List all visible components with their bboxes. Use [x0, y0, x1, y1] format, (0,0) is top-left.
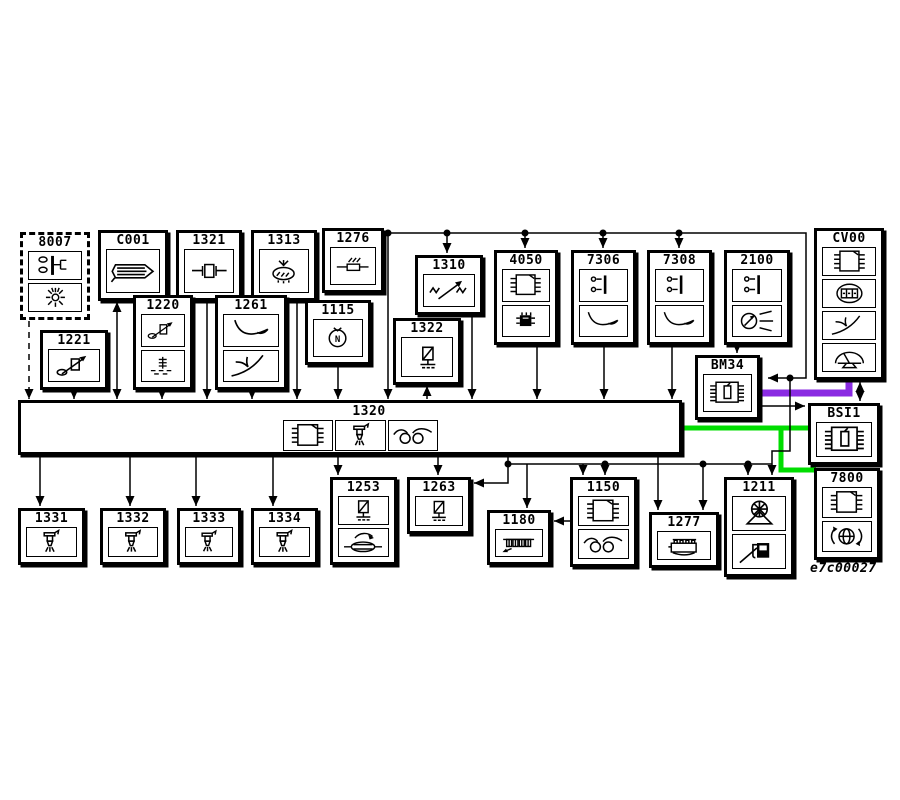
arrowhead: [293, 389, 302, 399]
coils-icon: [580, 531, 626, 557]
symbol-cells: [655, 269, 704, 337]
solenoid-diag-icon: [404, 340, 451, 375]
symbol-cell-fuel-pump: [732, 534, 786, 569]
junction-dot: [787, 375, 794, 382]
symbol-cells: [259, 527, 310, 557]
symbol-cell-engine: [657, 531, 711, 560]
symbol-cells: [502, 269, 550, 337]
symbol-cell-switch-2pin: [655, 269, 704, 302]
symbol-cell-starburst: [28, 283, 82, 312]
component-2100: 2100: [724, 250, 790, 345]
component-BM34: BM34: [695, 355, 760, 420]
arrowhead: [668, 389, 677, 399]
symbol-cell-pedal-curve: [579, 305, 628, 338]
component-label-1276: 1276: [325, 231, 381, 246]
ecu-icon: [705, 376, 749, 409]
knock-sensor-icon: [426, 276, 473, 305]
arrowhead: [474, 479, 484, 488]
symbol-cell-compass-n: N: [313, 319, 363, 357]
component-1333: 1333: [177, 508, 241, 565]
arrowhead: [856, 391, 865, 401]
resistor-heated-icon: [332, 249, 373, 282]
arrowhead: [654, 500, 663, 510]
symbol-cell-pedal-curve: [655, 305, 704, 338]
component-1261: 1261: [215, 295, 287, 390]
component-7308: 7308: [647, 250, 712, 345]
pedal-curve-icon: [226, 316, 277, 344]
arrowhead: [384, 389, 393, 399]
capacitor-icon: [186, 252, 231, 291]
symbol-cells: [415, 496, 463, 526]
junction-dot: [602, 461, 609, 468]
symbol-cell-branch-curve: [822, 311, 876, 340]
component-label-1115: 1115: [308, 303, 368, 318]
symbol-cells: [495, 529, 543, 557]
pedal-curve-icon: [657, 307, 701, 335]
arrowhead: [768, 465, 777, 475]
float-sensor-icon: [143, 316, 182, 344]
junction-dot: [745, 461, 752, 468]
component-8007: 8007: [20, 232, 90, 320]
component-1276: 1276: [322, 228, 384, 293]
component-1331: 1331: [18, 508, 85, 565]
switch-2pin-icon: [581, 271, 625, 299]
arrowhead: [36, 496, 45, 506]
component-1313: 1313: [251, 230, 317, 301]
sensor-oval-icon: [261, 252, 306, 291]
junction-dot: [522, 230, 529, 237]
component-label-1331: 1331: [21, 511, 82, 526]
component-C001: C001: [98, 230, 168, 301]
symbol-cells: [338, 496, 389, 557]
arrowhead: [599, 238, 608, 248]
component-1150: 1150: [570, 477, 637, 567]
symbol-cell-display-oval: [822, 279, 876, 308]
arrowhead: [158, 389, 167, 399]
injector-icon: [338, 422, 383, 449]
arrowhead: [334, 389, 343, 399]
arrowhead: [70, 389, 79, 399]
arrowhead: [443, 243, 452, 253]
arrowhead: [744, 465, 753, 475]
symbol-cell-sensor-oval: [259, 249, 309, 293]
float-sensor-icon: [51, 351, 98, 380]
component-label-1221: 1221: [43, 333, 105, 348]
symbol-cells: [108, 527, 158, 557]
symbol-cell-pedal-curve: [223, 314, 279, 347]
ecu-icon: [819, 424, 870, 454]
component-1332: 1332: [100, 508, 166, 565]
wire-purple-BM34-to-CV00: [761, 381, 849, 393]
engine-icon: [660, 533, 709, 558]
headlight-icon: [734, 307, 779, 335]
symbol-cell-ignition-coil: [502, 305, 550, 338]
junction-dot: [700, 461, 707, 468]
display-oval-icon: [825, 281, 874, 306]
chip-icon: [824, 489, 869, 516]
component-label-1263: 1263: [410, 480, 468, 495]
component-1220: 1220: [133, 295, 193, 390]
arrowhead: [126, 496, 135, 506]
symbol-cell-solenoid-diag: [415, 496, 463, 526]
symbol-cells: [578, 496, 629, 559]
symbol-cell-branch-curve: [223, 350, 279, 383]
injector-icon: [28, 529, 74, 555]
component-1277: 1277: [649, 512, 719, 568]
component-label-7800: 7800: [817, 471, 877, 486]
arrowhead: [521, 238, 530, 248]
chip-icon: [504, 271, 547, 299]
component-label-8007: 8007: [23, 235, 87, 250]
connector-pins-icon: [31, 253, 80, 278]
symbol-cell-chip: [822, 487, 872, 518]
arrowhead: [699, 500, 708, 510]
component-label-BM34: BM34: [698, 358, 757, 373]
symbol-cell-fuel-rail: [495, 529, 543, 557]
component-label-1322: 1322: [396, 321, 458, 336]
component-label-1277: 1277: [652, 515, 716, 530]
component-label-1211: 1211: [727, 480, 791, 495]
component-label-1253: 1253: [333, 480, 394, 495]
component-7306: 7306: [571, 250, 636, 345]
symbol-cell-solenoid-diag: [338, 496, 389, 525]
component-label-1332: 1332: [103, 511, 163, 526]
component-1310: 1310: [415, 255, 483, 315]
symbol-cell-injector: [185, 527, 233, 557]
arrowhead: [248, 389, 257, 399]
component-7800: 7800: [814, 468, 880, 560]
symbol-cell-capacitor: [184, 249, 234, 293]
arrowhead: [675, 238, 684, 248]
symbol-cell-injector: [108, 527, 158, 557]
wire-bus-to-1211: [772, 378, 790, 475]
symbol-cells: [185, 527, 233, 557]
component-label-2100: 2100: [727, 253, 787, 268]
component-label-7306: 7306: [574, 253, 633, 268]
arrowhead: [192, 496, 201, 506]
fuel-rail-icon: [497, 531, 540, 555]
arrowhead: [856, 382, 865, 392]
component-1321: 1321: [176, 230, 242, 301]
symbol-cell-resistor-heated: [330, 247, 376, 285]
wire-1320-to-1263-side: [474, 456, 508, 483]
arrowhead: [795, 402, 805, 411]
component-label-4050: 4050: [497, 253, 555, 268]
arrowhead: [579, 465, 588, 475]
switch-2pin-icon: [734, 271, 779, 299]
symbol-cell-diag-connector: [106, 249, 160, 293]
coils-icon: [390, 422, 435, 449]
temp-sensor-icon: [143, 352, 182, 380]
component-label-1150: 1150: [573, 480, 634, 495]
symbol-cell-knock-sensor: [423, 274, 475, 307]
symbol-cell-connector-pins: [28, 251, 82, 280]
component-label-1180: 1180: [490, 513, 548, 528]
component-1115: 1115 N: [305, 300, 371, 365]
component-label-1334: 1334: [254, 511, 315, 526]
starburst-icon: [31, 285, 80, 310]
component-1320: 1320: [18, 400, 682, 455]
arrowhead: [523, 498, 532, 508]
arrowhead: [423, 386, 432, 396]
globe-icon: [824, 523, 869, 550]
injector-icon: [110, 529, 155, 555]
symbol-cells: [657, 531, 711, 560]
symbol-cell-injector: [259, 527, 310, 557]
symbol-cell-coils: [388, 420, 438, 451]
component-label-C001: C001: [101, 233, 165, 248]
arrowhead: [334, 465, 343, 475]
symbol-cell-exhaust: [338, 528, 389, 557]
component-1211: 1211: [724, 477, 794, 577]
chip-icon: [825, 249, 874, 274]
junction-dot: [385, 230, 392, 237]
diagram-code: e7c00027: [810, 561, 877, 576]
arrowhead: [533, 389, 542, 399]
fuel-pump-icon: [735, 536, 784, 566]
component-label-CV00: CV00: [817, 231, 881, 246]
junction-dot: [676, 230, 683, 237]
symbol-cell-solenoid-diag: [401, 337, 453, 377]
symbol-cells: [330, 247, 376, 285]
symbol-cells: [816, 422, 872, 457]
component-4050: 4050: [494, 250, 558, 345]
symbol-cells: [423, 274, 475, 307]
symbol-cell-fan: [732, 496, 786, 531]
arrowhead: [768, 374, 778, 383]
symbol-cell-chip: [578, 496, 629, 526]
svg-text:N: N: [335, 336, 340, 346]
component-label-7308: 7308: [650, 253, 709, 268]
arrowhead: [601, 465, 610, 475]
symbol-cells: [732, 269, 782, 337]
symbol-cell-switch-2pin: [579, 269, 628, 302]
component-1180: 1180: [487, 510, 551, 565]
symbol-cells: [28, 251, 82, 312]
arrowhead: [600, 389, 609, 399]
pedal-curve-icon: [581, 307, 625, 335]
arrowhead: [113, 302, 122, 312]
symbol-cells: [26, 527, 77, 557]
symbol-cells: [184, 249, 234, 293]
symbol-cell-temp-sensor: [141, 350, 185, 383]
symbol-cell-chip: [502, 269, 550, 302]
ignition-coil-icon: [504, 307, 547, 335]
junction-dot: [600, 230, 607, 237]
arrowhead: [25, 389, 34, 399]
chip-icon: [580, 498, 626, 524]
compass-n-icon: N: [315, 321, 360, 354]
symbol-cells: N: [313, 319, 363, 357]
component-label-1310: 1310: [418, 258, 480, 273]
solenoid-diag-icon: [417, 498, 460, 524]
component-CV00: CV00: [814, 228, 884, 380]
symbol-cells: [822, 247, 876, 372]
junction-dot: [505, 461, 512, 468]
symbol-cells: [223, 314, 279, 382]
injector-icon: [187, 529, 230, 555]
component-1322: 1322: [393, 318, 461, 385]
symbol-cell-chip: [283, 420, 333, 451]
component-BSI1: BSI1: [808, 403, 880, 465]
switch-2pin-icon: [657, 271, 701, 299]
wiring-diagram: 8007 C001 13211313 1276 1310 4050 7306 7…: [0, 0, 900, 800]
arrowhead: [434, 465, 443, 475]
component-1263: 1263: [407, 477, 471, 534]
symbol-cells: [48, 349, 100, 382]
component-label-1313: 1313: [254, 233, 314, 248]
component-label-1220: 1220: [136, 298, 190, 313]
injector-icon: [261, 529, 307, 555]
component-label-1333: 1333: [180, 511, 238, 526]
junction-dot: [444, 230, 451, 237]
symbol-cells: [259, 249, 309, 293]
fan-icon: [735, 498, 784, 528]
symbol-cell-globe: [822, 521, 872, 552]
component-1253: 1253: [330, 477, 397, 565]
solenoid-diag-icon: [340, 498, 386, 523]
symbol-cell-coils: [578, 529, 629, 559]
gauge-dial-icon: [825, 345, 874, 370]
arrowhead: [113, 389, 122, 399]
symbol-cells: [283, 420, 438, 451]
symbol-cell-injector: [335, 420, 385, 451]
arrowhead: [468, 389, 477, 399]
symbol-cells: [703, 374, 752, 412]
branch-curve-icon: [226, 352, 277, 380]
exhaust-icon: [340, 530, 386, 555]
component-label-BSI1: BSI1: [811, 406, 877, 421]
symbol-cells: [401, 337, 453, 377]
component-1334: 1334: [251, 508, 318, 565]
diag-connector-icon: [109, 252, 158, 291]
symbol-cell-switch-2pin: [732, 269, 782, 302]
component-label-1320: 1320: [331, 404, 407, 419]
arrowhead: [203, 389, 212, 399]
symbol-cell-ecu: [816, 422, 872, 457]
symbol-cell-ecu: [703, 374, 752, 412]
component-1221: 1221: [40, 330, 108, 390]
arrowhead: [269, 496, 278, 506]
symbol-cell-float-sensor: [141, 314, 185, 347]
branch-curve-icon: [825, 313, 874, 338]
symbol-cells: [141, 314, 185, 382]
symbol-cell-float-sensor: [48, 349, 100, 382]
symbol-cell-gauge-dial: [822, 343, 876, 372]
symbol-cells: [106, 249, 160, 293]
arrowhead: [554, 517, 564, 526]
symbol-cell-headlight: [732, 305, 782, 338]
chip-icon: [285, 422, 330, 449]
symbol-cells: [822, 487, 872, 552]
component-label-1321: 1321: [179, 233, 239, 248]
symbol-cell-chip: [822, 247, 876, 276]
symbol-cells: [579, 269, 628, 337]
symbol-cells: [732, 496, 786, 569]
symbol-cell-injector: [26, 527, 77, 557]
component-label-1261: 1261: [218, 298, 284, 313]
